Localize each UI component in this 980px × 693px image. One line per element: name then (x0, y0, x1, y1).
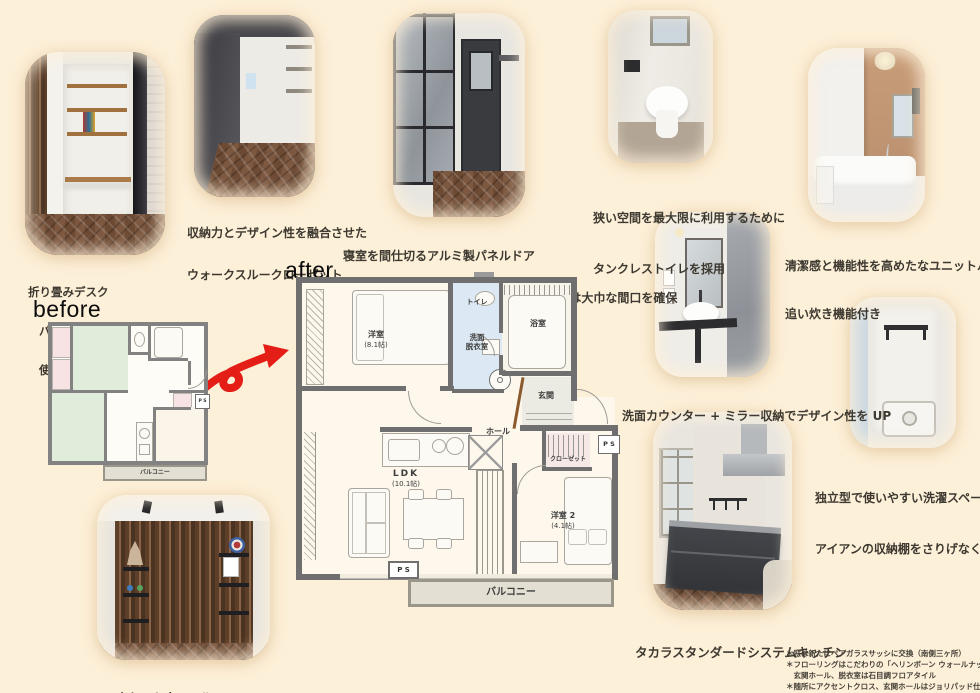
bath-wall-hatch (504, 285, 570, 295)
room-label-closet: クローゼット (544, 455, 592, 465)
wall (48, 322, 52, 465)
room-name: トイレ (467, 298, 488, 306)
range-hood (723, 454, 785, 476)
caption-line: 狭い空間を最大限に利用するために (593, 210, 785, 227)
bed-pillow (588, 529, 607, 545)
utensil (725, 501, 727, 510)
toilet-base (656, 110, 678, 138)
wall (153, 410, 156, 461)
room-label-hall: ホール (476, 427, 520, 437)
after-ps-right: P S (598, 435, 620, 454)
caption-laundry: 独立型で使いやすい洗濯スペース アイアンの収納棚をさりげなく設置 (815, 456, 980, 592)
corner-shelf (123, 619, 149, 623)
wall (302, 386, 406, 391)
chair (408, 489, 424, 500)
bed-pillow (568, 529, 587, 545)
entrance-floor (522, 377, 574, 425)
before-room-green-top (70, 325, 128, 391)
shield-plate-decor (229, 537, 245, 553)
wall (52, 390, 128, 393)
herringbone-floor (205, 143, 315, 197)
room-label-bedroom1: 洋室 (8.1帖) (344, 330, 408, 350)
entrance-door-arc (577, 389, 608, 424)
photo-frame-decor (223, 557, 239, 577)
shelf (286, 67, 312, 71)
before-sink (139, 428, 150, 439)
photo-panel-door (393, 13, 525, 217)
photo-toilet (608, 10, 713, 163)
renovation-arrow-icon (200, 343, 292, 393)
balcony-label: バルコニー (140, 469, 170, 476)
shelf (67, 132, 127, 136)
corner-shelf (499, 55, 519, 61)
photo-folding-desk (25, 52, 165, 255)
utensil (737, 501, 739, 510)
footnote-line: 玄関ホール、脱衣室は石目調フロアタイル (786, 670, 980, 681)
corner-shelf (219, 611, 249, 615)
wall (502, 371, 574, 376)
chest (520, 541, 558, 563)
corner-shelf (219, 583, 249, 587)
utensil (713, 501, 715, 510)
wall (542, 467, 592, 471)
shelf (286, 45, 312, 49)
herringbone-floor (433, 171, 525, 217)
herringbone-floor (97, 643, 270, 660)
wall (296, 277, 577, 283)
black-pillar (133, 52, 147, 230)
footnotes: ＊窓は新たにペアガラスサッシに交換（南側三ヶ所） ＊フローリングはこだわりの「ヘ… (786, 648, 980, 692)
room-label-ldk: LDK (10.1帖) (376, 469, 436, 489)
before-room-bottom-right (153, 407, 205, 461)
room-name: 浴室 (530, 319, 546, 328)
room-size: (4.1帖) (536, 521, 590, 531)
photo-unit-bath (808, 48, 925, 222)
wall (499, 283, 503, 333)
room-label-washroom: 洗面 脱衣室 (454, 333, 500, 351)
shelf (286, 89, 312, 93)
wall (47, 52, 63, 217)
balcony-label: バルコニー (486, 587, 536, 598)
before-closet-pink (52, 327, 72, 358)
wall (520, 425, 618, 431)
caption-line: タンクレストイレを採用 (593, 261, 785, 278)
caption-line: 独立型で使いやすい洗濯スペース (815, 490, 980, 507)
before-ps-box: P S (195, 394, 210, 409)
room-name: クローゼット (550, 456, 586, 463)
before-balcony: バルコニー (103, 465, 207, 481)
washer-dot (497, 377, 503, 383)
stove (388, 439, 420, 461)
shelf (67, 108, 127, 112)
herringbone-floor (25, 214, 165, 255)
sofa-cushion (366, 523, 386, 554)
closet-hatch (548, 435, 588, 457)
caption-line: 収納力とデザイン性を融合させた (187, 226, 367, 240)
sofa-cushion (366, 492, 386, 523)
caption-line: 洗面カウンター + ミラー収納でデザイン性を UP (622, 409, 891, 423)
wall (104, 392, 107, 461)
photo-walkthrough-closet (194, 15, 315, 197)
wall (128, 352, 150, 355)
storage-xbox (468, 435, 503, 470)
room-name: 洋室 2 (551, 511, 575, 520)
room-name: ホール (486, 427, 510, 436)
footnote-line: ＊随所にアクセントクロス、玄関ホールはジョリパッド仕上げ (786, 681, 980, 692)
photo-accent-wall (97, 495, 270, 660)
wall (169, 390, 208, 393)
room-size: (8.1帖) (344, 340, 408, 350)
chair (408, 538, 424, 549)
chair (436, 489, 452, 500)
before-closet-pink (52, 359, 72, 390)
room-name: 洋室 (368, 330, 384, 339)
step-line (526, 413, 572, 414)
wall (380, 427, 472, 432)
footnote-line: ＊フローリングはこだわりの「ヘリンボーン ウォールナット」 (786, 659, 980, 670)
room-label-bath: 浴室 (516, 319, 560, 329)
step-line (526, 419, 572, 420)
footnote-line: ＊窓は新たにペアガラスサッシに交換（南側三ヶ所） (786, 648, 980, 659)
vent (474, 272, 494, 277)
wall (296, 277, 302, 580)
corner-shelf (123, 567, 149, 571)
side-wall (97, 521, 115, 660)
shelf (67, 84, 127, 88)
wall (448, 283, 453, 389)
ps-label: P S (603, 440, 615, 448)
sink-bowl (432, 439, 446, 453)
shelf-item (127, 585, 133, 591)
room-label-entrance: 玄関 (524, 391, 568, 401)
books (83, 112, 95, 132)
spotlight (214, 501, 224, 514)
sofa-corner (763, 560, 792, 610)
before-stove (139, 444, 150, 455)
bedroom1-shelving (306, 289, 324, 385)
before-label: before (33, 296, 101, 323)
before-floorplan: P S バルコニー (48, 322, 208, 483)
room-name: 玄関 (538, 391, 554, 400)
sink-bowl (446, 437, 464, 455)
before-bathtub (154, 327, 183, 358)
after-floorplan: 洋室 (8.1帖) トイレ 洗面 脱衣室 浴室 玄関 ホール LDK (10.1… (296, 277, 622, 608)
shaft-hatch (476, 470, 504, 576)
caption-accent-wall: アクセントウォール 木の縦格子 + 可動棚を設置 (105, 661, 266, 693)
shelf-bottles (912, 88, 920, 114)
corner-shelf (123, 593, 149, 597)
wall (296, 574, 340, 580)
before-room-green-bottom (52, 392, 104, 461)
door-window (469, 51, 493, 91)
counter-leg (695, 329, 701, 363)
bathtub (508, 295, 566, 369)
before-toilet (134, 332, 145, 347)
sofa-back (352, 492, 366, 554)
caption-line: アイアンの収納棚をさりげなく設置 (815, 541, 980, 558)
wall (148, 358, 188, 361)
room-label-toilet: トイレ (456, 297, 498, 307)
tub-apron (816, 166, 834, 204)
caption-vanity: 洗面カウンター + ミラー収納でデザイン性を UP (622, 381, 891, 451)
paper-holder (624, 60, 640, 72)
shelf-item (137, 585, 143, 591)
wall (70, 325, 73, 391)
after-balcony: バルコニー (408, 579, 614, 607)
wall (153, 407, 191, 410)
caption-line: 追い炊き機能付き (785, 306, 980, 322)
wall (512, 463, 517, 574)
renovation-flyer: 収納力とデザイン性を融合させた ウォークスルークローゼット 折り畳みデスク パソ… (0, 0, 980, 693)
ps-label: P S (397, 566, 410, 574)
after-ps-bottom: P S (388, 561, 419, 579)
drain (902, 411, 917, 426)
ps-label: P S (198, 399, 206, 404)
room-name: 洗面 (470, 333, 485, 342)
bed-pillow (356, 294, 384, 361)
aluminum-panel-wall (393, 13, 455, 185)
wood-slat-wall (25, 52, 47, 217)
wall (452, 389, 504, 393)
wall (128, 325, 131, 355)
caption-unit-bath: 清潔感と機能性を高めたなユニットバス 追い炊き機能付き (785, 226, 980, 354)
folding-desk (65, 177, 131, 182)
side-wall (253, 521, 270, 660)
window (650, 16, 690, 46)
window-glimpse (246, 73, 256, 89)
ceiling-light (874, 52, 896, 70)
room-label-bedroom2: 洋室 2 (4.1帖) (536, 511, 590, 531)
room-name: LDK (393, 469, 419, 479)
ldk-wall-shelf (304, 432, 316, 560)
caption-line: 清潔感と機能性を高めたなユニットバス (785, 258, 980, 274)
room-name: 脱衣室 (466, 342, 489, 351)
dining-table (403, 498, 464, 540)
mirror (892, 94, 914, 138)
wall (571, 277, 577, 401)
room-size: (10.1帖) (376, 479, 436, 489)
chair (436, 538, 452, 549)
